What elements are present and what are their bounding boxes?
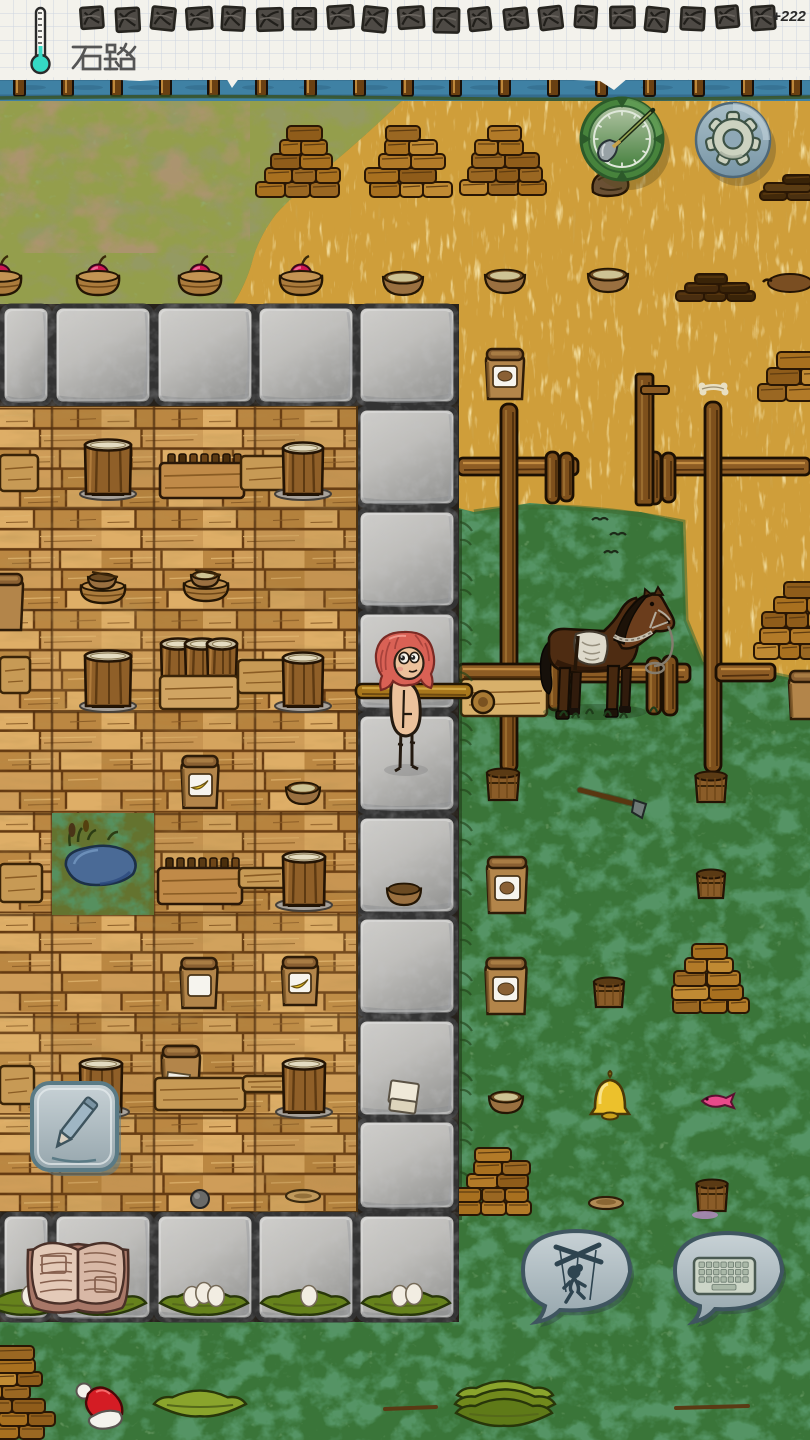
svg-text:+222: +222 xyxy=(772,8,806,25)
